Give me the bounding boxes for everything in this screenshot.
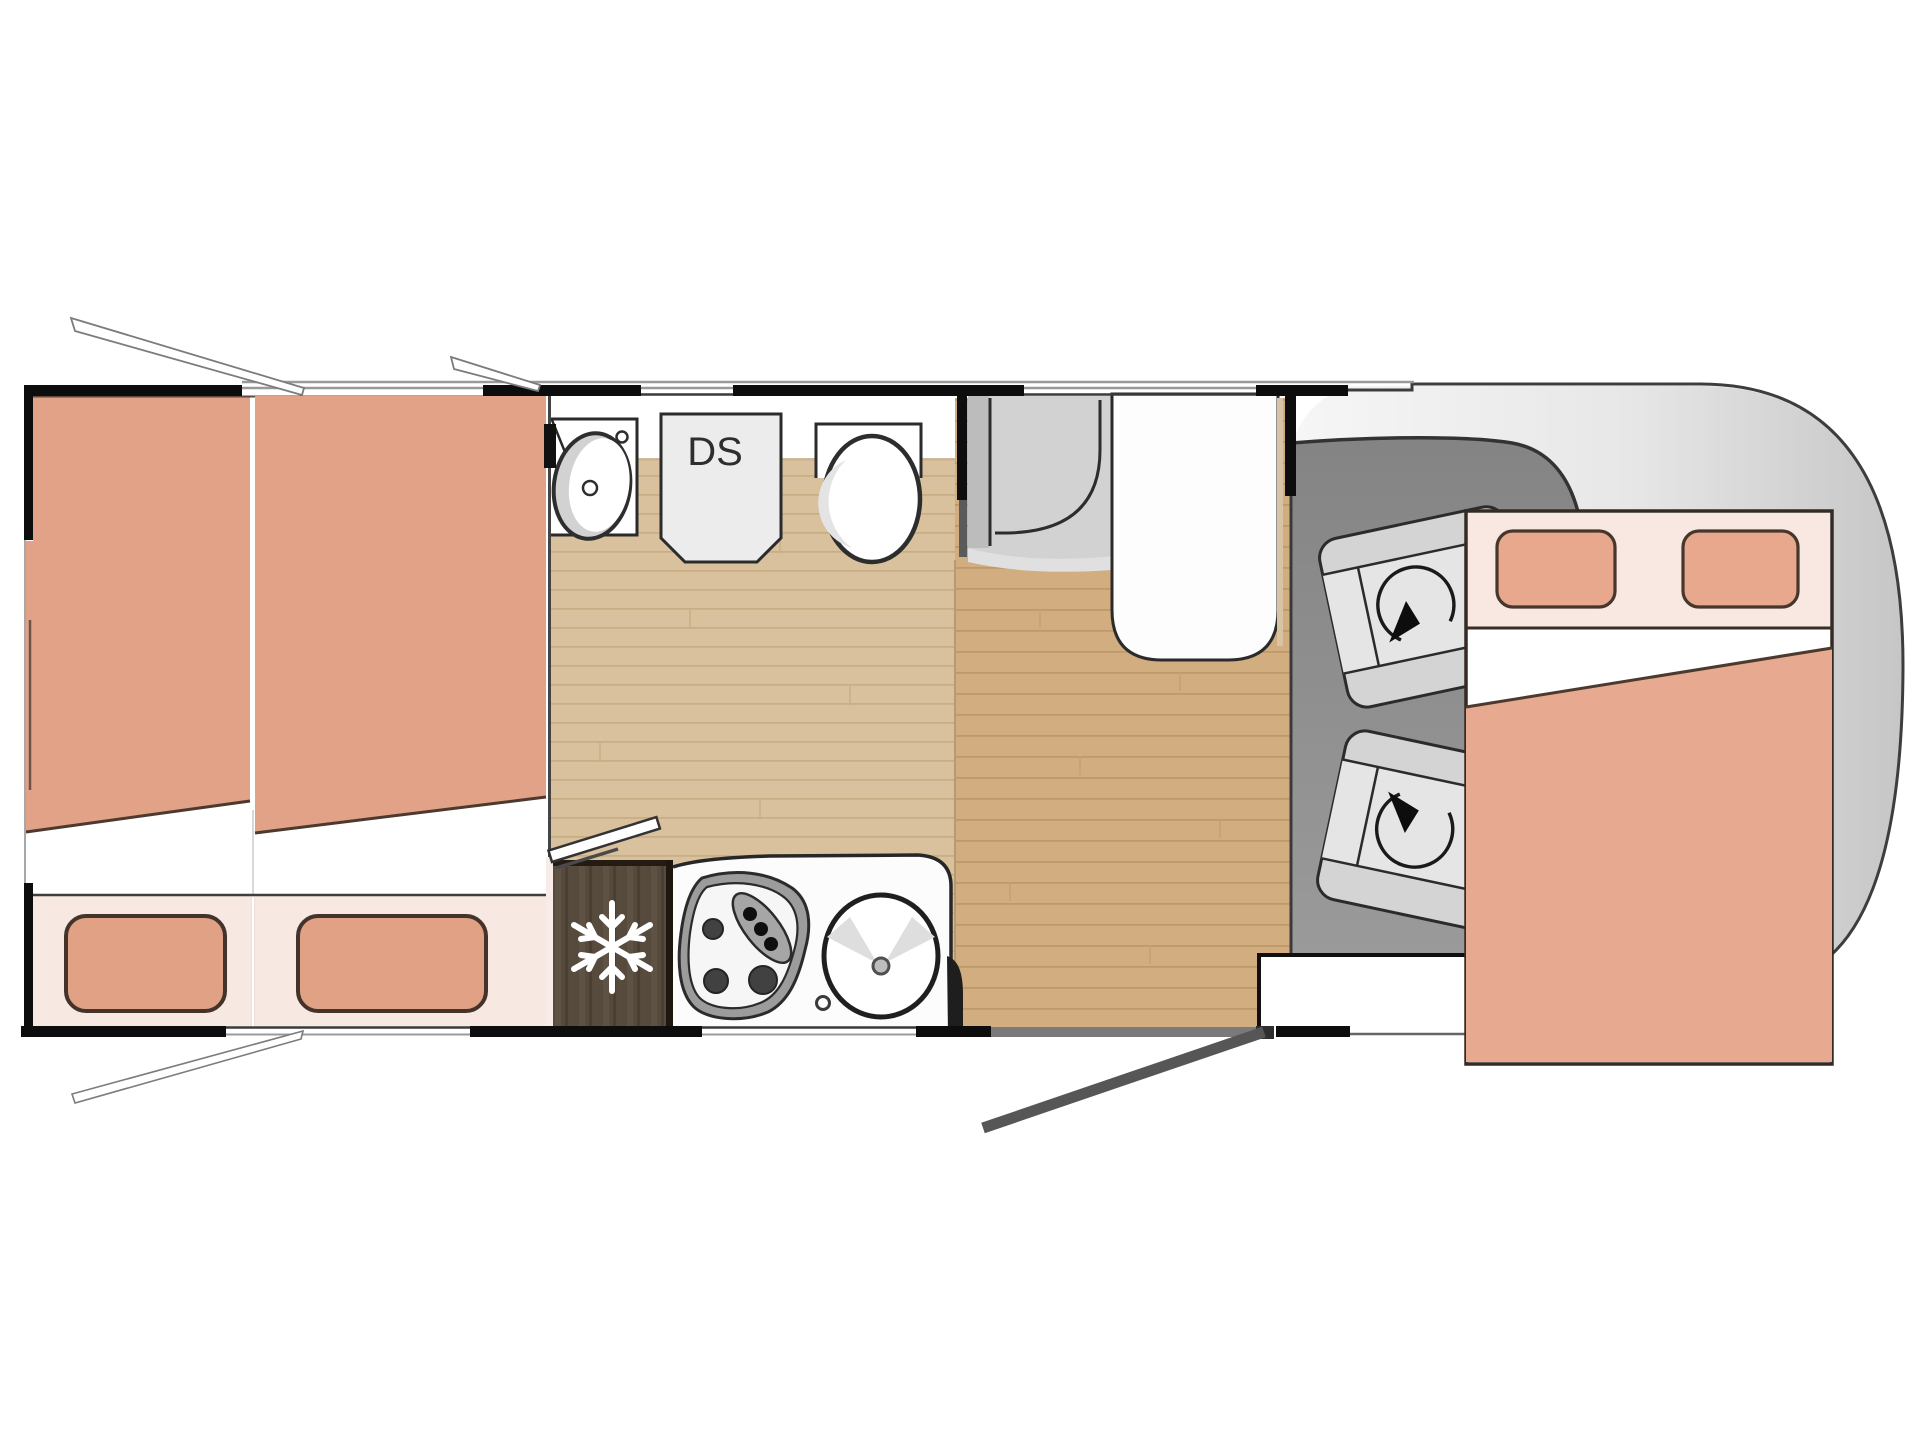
svg-text:DS: DS — [687, 430, 743, 474]
